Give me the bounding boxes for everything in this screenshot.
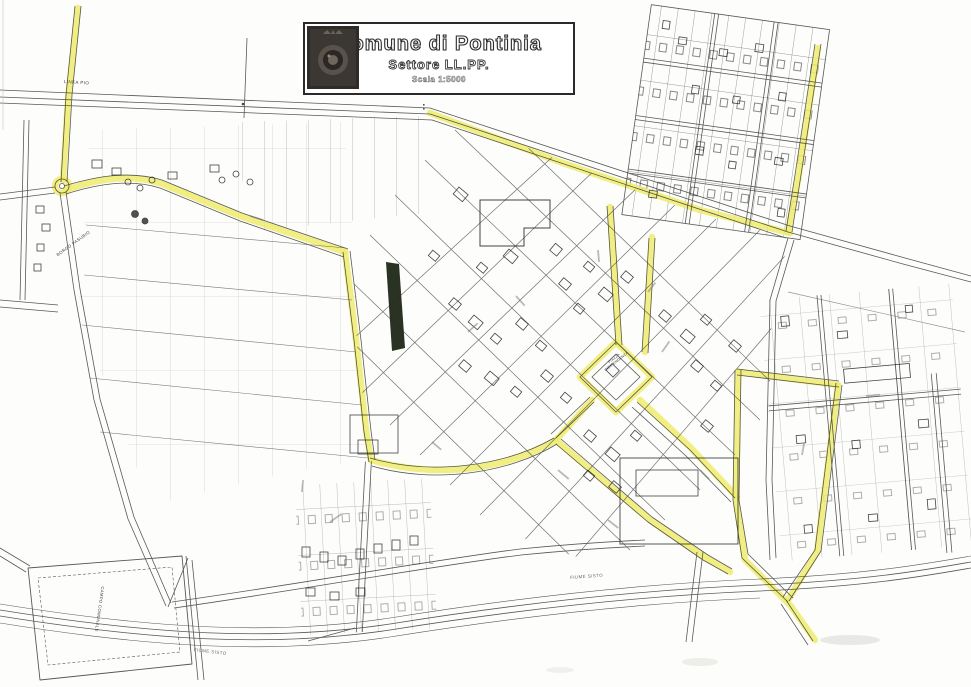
coat-of-arms-icon (307, 26, 359, 89)
title-line2: Settore LL.PP. (388, 57, 489, 72)
title-scale: Scala 1:5000 (412, 75, 466, 84)
scanned-map-page: Comune di Pontinia Settore LL.PP. Scala … (0, 0, 971, 687)
map-drawing (0, 0, 971, 687)
title-line1: Comune di Pontinia (336, 33, 542, 56)
title-block: Comune di Pontinia Settore LL.PP. Scala … (303, 22, 575, 95)
